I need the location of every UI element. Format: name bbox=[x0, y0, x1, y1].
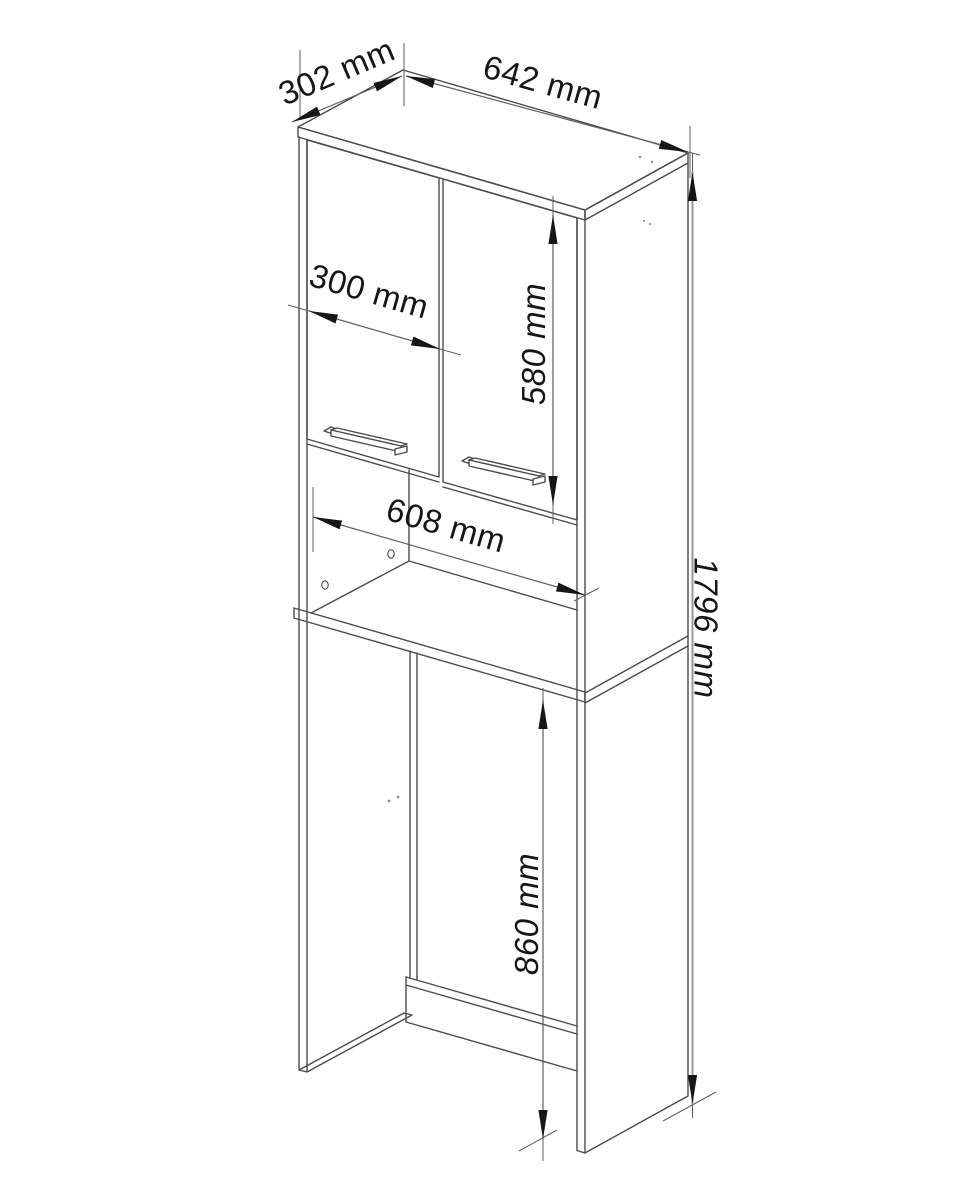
dimension-opening-height: 860 mm bbox=[508, 688, 557, 1161]
lower-section bbox=[410, 651, 417, 980]
drawing-canvas: 302 mm 642 mm 300 mm 580 mm 608 mm 1796 … bbox=[0, 0, 973, 1200]
dimension-total-height: 1796 mm bbox=[663, 153, 725, 1121]
cabinet-technical-drawing: 302 mm 642 mm 300 mm 580 mm 608 mm 1796 … bbox=[0, 0, 973, 1200]
top-panel bbox=[298, 70, 688, 220]
dimension-label-top-width: 642 mm bbox=[479, 48, 607, 116]
dimension-label-total-height: 1796 mm bbox=[688, 557, 725, 698]
dimension-label-door-height: 580 mm bbox=[515, 283, 552, 405]
door-handle-left bbox=[324, 427, 407, 455]
plinth bbox=[406, 977, 577, 1071]
dimension-depth: 302 mm bbox=[273, 31, 404, 122]
dimension-top-width: 642 mm bbox=[406, 48, 700, 178]
door-handle-right bbox=[462, 457, 545, 485]
right-side-panel bbox=[577, 163, 688, 1153]
cabinet-outline bbox=[294, 70, 688, 1153]
extension-line bbox=[688, 126, 700, 178]
dimension-label-opening-height: 860 mm bbox=[508, 853, 545, 975]
dimension-inner-width: 608 mm bbox=[313, 487, 599, 601]
dimension-door-width: 300 mm bbox=[288, 256, 461, 355]
dimension-label-depth: 302 mm bbox=[273, 31, 400, 113]
shelf-pin-holes bbox=[322, 550, 394, 589]
